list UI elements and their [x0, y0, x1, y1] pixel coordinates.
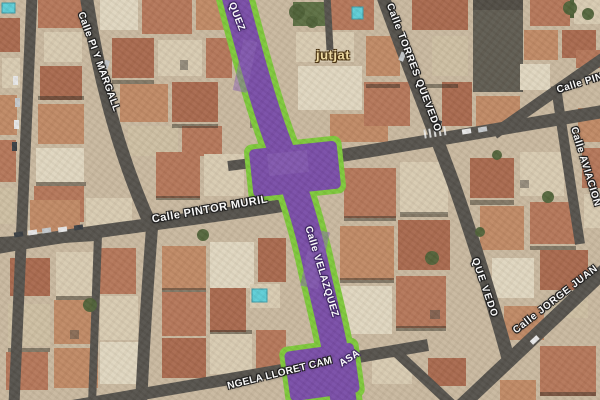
map-imagery: [0, 0, 600, 400]
satellite-map[interactable]: Calle PI Y MARGALL Calle PINTOR MURIL Ca…: [0, 0, 600, 400]
place-label-jutjat: jutjat: [316, 49, 350, 62]
